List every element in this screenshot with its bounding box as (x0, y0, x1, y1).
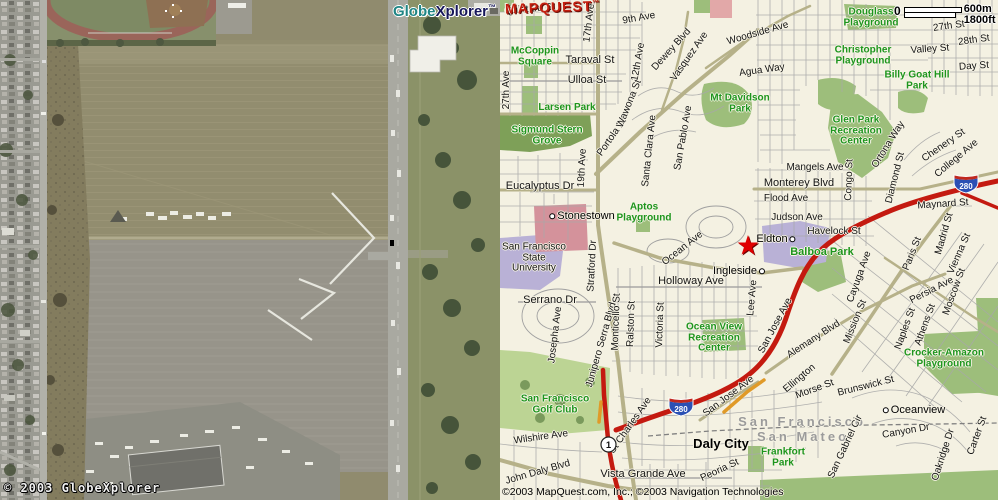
map-label-9th-ave: 9th Ave (622, 11, 657, 27)
map-label-havelock-st: Havelock St (807, 227, 860, 238)
svg-text:1: 1 (606, 440, 612, 451)
globexplorer-logo-xplorer: Xplorer (435, 3, 488, 20)
map-label-valley-st: Valley St (910, 43, 949, 56)
place-dot-icon (549, 213, 555, 219)
satellite-houses-strip (0, 0, 40, 500)
map-label-eldton: Eldton (756, 234, 797, 246)
map-label-sigmund-stern: Sigmund Stern Grove (511, 126, 582, 147)
globexplorer-logo-globe: Globe (393, 3, 436, 20)
map-label-lee-ave: Lee Ave (746, 280, 760, 317)
satellite-image (0, 0, 500, 500)
map-label-san-jose-ave: San Jose Ave (757, 297, 795, 356)
map-label-larsen-park: Larsen Park (538, 103, 595, 114)
map-label-judson-ave: Judson Ave (771, 213, 823, 224)
map-label-day-st: Day St (959, 61, 990, 74)
dual-map-view: GlobeXplorer™ © 2003 GlobeXplorer (0, 0, 998, 500)
place-dot-icon (759, 268, 765, 274)
interstate-280-shield-south: 280 (667, 397, 695, 417)
state-route-1-shield: 1 (600, 436, 617, 453)
map-label-san-jose-ave: San Jose Ave (701, 374, 756, 419)
map-label-madrid-st: Madrid St (934, 212, 956, 256)
scale-bar-graphic (904, 7, 962, 18)
mapquest-logo-tm: ™ (592, 0, 600, 7)
map-label-san-francisco: San Francisco (738, 415, 866, 429)
map-label-glen-park: Glen Park Recreation Center (830, 115, 882, 147)
map-label-ulloa-st: Ulloa St (568, 75, 607, 87)
svg-text:280: 280 (674, 405, 688, 414)
map-label-crocker-amazon: Crocker-Amazon Playground (904, 349, 984, 370)
map-label-paris-st: Paris St (902, 236, 925, 272)
map-label-daly-city: Daly City (693, 437, 749, 451)
interstate-280-shield-east: 280 (952, 174, 980, 194)
map-label-wilshire-ave: Wilshire Ave (513, 429, 569, 447)
map-label-aptos: Aptos Playground (616, 203, 671, 224)
map-label-peoria-st: Peoria St (699, 458, 741, 485)
svg-text:280: 280 (959, 182, 973, 191)
map-label-27th-ave: 27th Ave (502, 71, 513, 110)
map-scale-bar: 0 600m 1800ft (894, 4, 995, 26)
map-label-stonestown: Stonestown (547, 211, 614, 223)
scale-imperial-label: 1800ft (964, 15, 996, 26)
map-label-john-daly-blvd: John Daly Blvd (504, 459, 571, 487)
globexplorer-logo-tm: ™ (488, 3, 496, 12)
place-dot-icon (790, 236, 796, 242)
map-label-victoria-st: Victoria St (655, 302, 667, 348)
scale-zero-label: 0 (894, 4, 901, 18)
map-label-mangels-ave: Mangels Ave (786, 163, 843, 174)
map-label-vista-grande-ave: Vista Grande Ave (600, 469, 685, 481)
map-label-san-pablo-ave: San Pablo Ave (673, 105, 695, 171)
place-dot-icon (883, 407, 889, 413)
map-label-ocean-ave: Ocean Ave (661, 230, 706, 268)
map-label-serrano-dr: Serrano Dr (523, 295, 577, 307)
map-label-19th-ave: 19th Ave (577, 148, 590, 187)
map-label-eucalyptus-dr: Eucalyptus Dr (506, 181, 574, 193)
map-label-agua-way: Agua Way (739, 63, 786, 80)
map-label-monterey-blvd: Monterey Blvd (764, 178, 834, 190)
scale-bar-imperial (904, 12, 956, 18)
map-label-ralston-st: Ralston St (626, 301, 638, 347)
map-label-san-francisco: San Francisco State University (502, 242, 566, 274)
map-label-alemany-blvd: Alemany Blvd (786, 319, 843, 361)
map-label-frankfort: Frankfort Park (761, 448, 805, 469)
satellite-green-strip (408, 0, 500, 500)
map-label-mt-davidson: Mt Davidson Park (710, 94, 769, 115)
map-label-billy-goat-hill: Billy Goat Hill Park (884, 71, 949, 92)
satellite-pane[interactable]: GlobeXplorer™ © 2003 GlobeXplorer (0, 0, 500, 500)
satellite-dirt-field (76, 40, 390, 240)
map-label-oceanview: Oceanview (881, 405, 945, 417)
map-label-josepha-ave: Josepha Ave (547, 306, 564, 364)
map-label-flood-ave: Flood Ave (764, 194, 808, 205)
map-label-maynard-st: Maynard St (917, 198, 969, 212)
map-label-mccoppin: McCoppin Square (511, 47, 559, 68)
map-label-san-francisco: San Francisco Golf Club (521, 395, 589, 416)
map-label-stratford-dr: Stratford Dr (586, 240, 599, 292)
map-label-santa-clara-ave: Santa Clara Ave (641, 115, 659, 188)
satellite-copyright: © 2003 GlobeXplorer (4, 481, 160, 495)
map-label-monticello-st: Monticello St (611, 293, 623, 351)
map-label-12th-ave: 12th Ave (630, 42, 647, 82)
map-label-ocean-view: Ocean View Recreation Center (686, 322, 742, 354)
map-label-congo-st: Congo St (844, 159, 856, 201)
map-label-carter-st: Carter St (966, 415, 990, 456)
map-label-diamond-st: Diamond St (885, 151, 908, 204)
map-label-naples-st: Naples St (894, 307, 919, 351)
map-label-taraval-st: Taraval St (566, 55, 615, 67)
map-label-mission-st: Mission St (842, 299, 869, 346)
map-label-christopher: Christopher Playground (835, 46, 892, 67)
map-label-28th-st: 28th St (958, 34, 991, 49)
map-label-canyon-dr: Canyon Dr (882, 423, 931, 442)
globexplorer-logo: GlobeXplorer™ (393, 3, 496, 20)
map-label-woodside-ave: Woodside Ave (726, 20, 790, 48)
map-label-holloway-ave: Holloway Ave (658, 276, 724, 288)
map-label-brunswick-st: Brunswick St (837, 375, 896, 399)
street-map-pane[interactable]: Quintara St27th AveTaraval StUlloa St17t… (500, 0, 998, 500)
map-label-san-mateo: San Mateo (757, 430, 849, 444)
map-label-balboa-park: Balboa Park (790, 247, 854, 259)
map-label-douglass: Douglass Playground (843, 8, 898, 29)
map-label-oakridge-dr: Oakridge Dr (931, 428, 958, 483)
map-copyright: ©2003 MapQuest.com, Inc.; ©2003 Navigati… (502, 486, 783, 498)
location-star-marker[interactable]: ★ (736, 230, 760, 261)
